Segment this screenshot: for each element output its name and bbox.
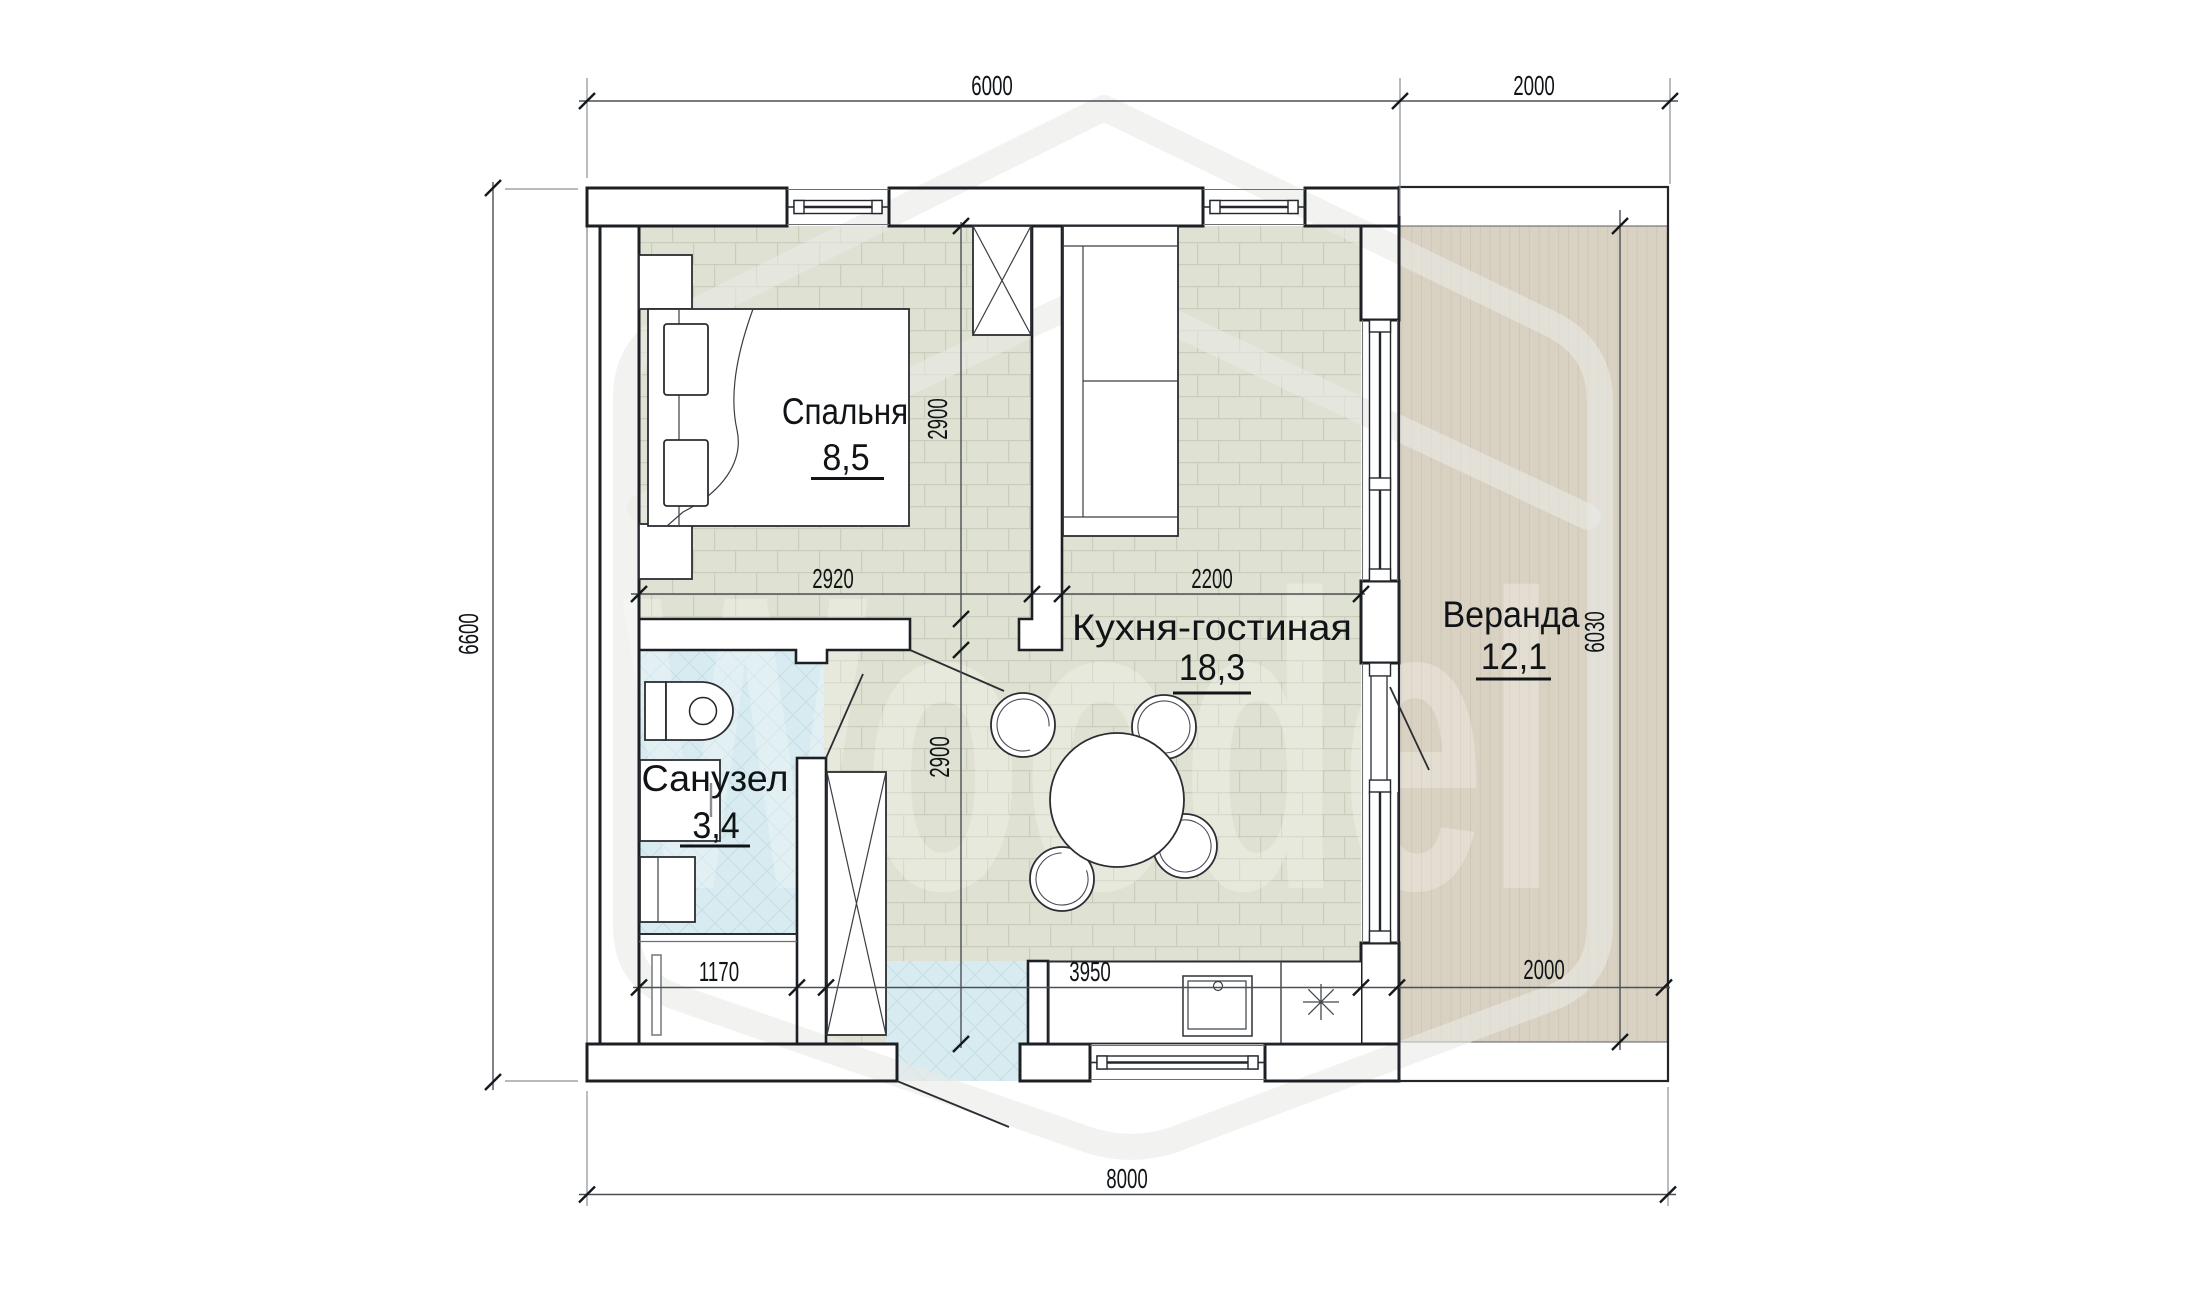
svg-text:6000: 6000 (971, 70, 1013, 100)
svg-text:Спальня: Спальня (782, 392, 908, 433)
svg-text:2900: 2900 (922, 398, 952, 440)
svg-text:Веранда: Веранда (1442, 594, 1579, 636)
svg-text:3950: 3950 (1069, 956, 1111, 986)
svg-text:8000: 8000 (1106, 1163, 1148, 1193)
svg-text:2000: 2000 (1523, 954, 1565, 984)
svg-text:Кухня-гостиная: Кухня-гостиная (1072, 607, 1352, 649)
svg-text:6600: 6600 (453, 613, 483, 655)
svg-text:2920: 2920 (812, 563, 854, 593)
svg-text:Санузел: Санузел (642, 757, 789, 799)
svg-text:2900: 2900 (924, 736, 954, 778)
svg-text:3,4: 3,4 (692, 805, 739, 847)
svg-text:12,1: 12,1 (1481, 636, 1547, 678)
svg-text:8,5: 8,5 (822, 437, 869, 479)
svg-text:6030: 6030 (1579, 611, 1609, 653)
svg-text:2200: 2200 (1191, 563, 1233, 593)
svg-text:18,3: 18,3 (1179, 647, 1245, 689)
svg-text:1170: 1170 (699, 956, 739, 986)
svg-text:2000: 2000 (1513, 70, 1555, 100)
